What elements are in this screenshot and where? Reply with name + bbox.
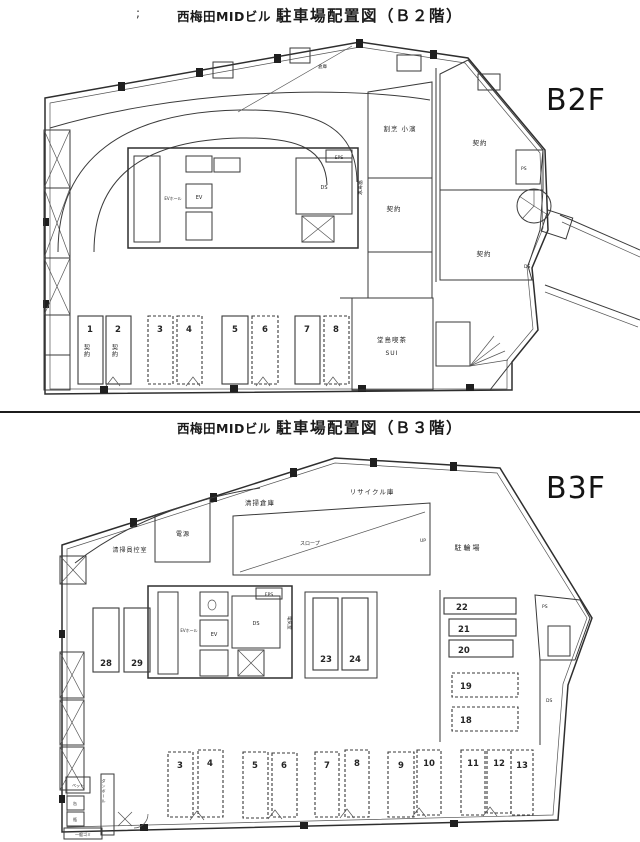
stall-number: 29 <box>131 659 143 669</box>
b2f-road-lines <box>545 215 640 327</box>
b3f-right-stair: PS DS <box>535 595 590 745</box>
b3f-recycle-label: リサイクル庫 <box>350 487 395 496</box>
stall-number: 21 <box>458 625 470 635</box>
b2f-tenant-b-room <box>440 60 543 190</box>
b3f-ev-label: EV <box>211 632 218 638</box>
b2f-cafe-sub-label: SUI <box>386 350 399 357</box>
b3f-title: 西梅田MIDビル 駐車場配置図（Ｂ３階） <box>0 416 640 438</box>
b2f-souko-label: 倉庫 <box>318 63 327 70</box>
b3f-core-stairs <box>158 592 178 674</box>
stall-number: 3 <box>177 761 183 771</box>
b2f-ramp-curves <box>50 46 430 252</box>
b2f-left-shaft-column <box>44 130 70 390</box>
stall-number: 18 <box>460 716 472 726</box>
section-divider <box>0 411 640 413</box>
b2f-wall-column-marks <box>43 39 474 393</box>
stall-number: 6 <box>281 761 287 771</box>
b2f-core-stairs <box>134 156 160 242</box>
b3f-dengen-room <box>155 498 210 562</box>
stall-number: 3 <box>157 325 163 335</box>
scanned-parking-layout-page: ; 西梅田MIDビル 駐車場配置図（Ｂ２階） <box>0 0 640 842</box>
b3f-ds-right-label: DS <box>546 698 552 704</box>
b2f-cafe-label: 堂島喫茶 <box>377 335 407 344</box>
b2f-ev-hall-label: EVホール <box>164 196 181 201</box>
b2f-cafe-room <box>352 298 433 390</box>
b2f-floor-label: B2F <box>546 83 606 118</box>
b2f-core: EVホール EV DS EPS 電気室 <box>128 148 363 248</box>
b2f-ds-label: DS <box>320 185 327 191</box>
b2f-rear-stairs <box>436 322 470 366</box>
b2f-ps-label: PS <box>521 166 527 172</box>
b3f-ev-hall-label: EVホール <box>180 628 197 633</box>
b2f-cafe-area: 堂島喫茶 SUI <box>340 298 512 390</box>
stall-number: 10 <box>423 759 435 769</box>
b3f-stalls-bottom: 3 4 5 6 7 8 9 10 11 12 13 <box>168 750 533 820</box>
b2f-ds-right-label: DS <box>524 264 530 270</box>
stall-number: 23 <box>320 655 332 665</box>
stall-number: 13 <box>516 761 528 771</box>
b2f-kappo-label: 割烹 小濱 <box>383 124 416 133</box>
b3f-churinjo-label: 駐輪場 <box>455 543 482 552</box>
b3f-ippan-label: 一般ゴミ <box>75 831 91 837</box>
b3f-kan-label: 缶 <box>73 800 77 806</box>
b2f-title: 西梅田MIDビル 駐車場配置図（Ｂ２階） <box>0 4 640 26</box>
b3f-denki-label: 電気室 <box>286 616 293 630</box>
b3f-ramp-area: 清掃倉庫 リサイクル庫 スロープ UP <box>233 487 430 575</box>
b3f-pet-label: ペット <box>72 782 84 788</box>
b3f-title-building: 西梅田MIDビル <box>177 421 271 436</box>
b2f-title-building: 西梅田MIDビル <box>177 9 271 24</box>
stall-number: 6 <box>262 325 268 335</box>
b2f-ev-label: EV <box>196 195 203 201</box>
b3f-core: EVホール EV DS EPS 電気室 <box>148 586 293 678</box>
b3f-eps-label: EPS <box>265 592 274 598</box>
b2f-floorplan: 倉庫 EVホール EV DS EPS 電気室 割烹 小濱 契約 <box>0 30 640 412</box>
b3f-dengen-label: 電源 <box>176 530 190 538</box>
stall-number: 7 <box>304 325 310 335</box>
b3f-wc <box>200 592 228 616</box>
b3f-slope-label: スロープ <box>300 541 320 547</box>
stall-number: 8 <box>354 759 360 769</box>
stall-number: 5 <box>252 761 258 771</box>
b3f-floor-label: B3F <box>546 471 606 506</box>
b3f-stalls-mid: 23 24 <box>305 592 377 678</box>
b2f-top-stairs: 倉庫 <box>213 48 500 90</box>
b3f-up-label: UP <box>420 538 426 544</box>
stall-number: 5 <box>232 325 238 335</box>
b2f-parking-stalls: 1 2 3 4 5 6 7 8 契約 契約 <box>78 316 349 386</box>
b2f-tenant-a-label: 契約 <box>387 204 402 213</box>
b2f-tenant-c-label: 契約 <box>477 249 492 258</box>
stall-number: 19 <box>460 682 472 692</box>
b3f-stalls-right: 22 21 20 19 18 <box>440 590 518 742</box>
b3f-ps-label: PS <box>542 604 548 610</box>
stall-number: 22 <box>456 603 468 613</box>
b3f-stalls-left: 28 29 <box>93 608 150 672</box>
stall-number: 28 <box>100 659 112 669</box>
stall-number: 8 <box>333 325 339 335</box>
stall-1-tag: 契約 <box>83 343 90 358</box>
b3f-ds-label: DS <box>252 621 259 627</box>
b3f-left-shaft-column <box>60 556 86 790</box>
b2f-spiral-stair: PS DS <box>516 150 573 270</box>
b3f-slope-room <box>233 503 430 575</box>
b3f-topleft-rooms: 清掃員控室 電源 <box>75 488 260 563</box>
stall-number: 4 <box>207 759 213 769</box>
b2f-tenant-b-label: 契約 <box>473 138 488 147</box>
b3f-floorplan: 清掃員控室 電源 清掃倉庫 リサイクル庫 スロープ UP 駐輪場 EVホール E… <box>0 445 640 842</box>
b3f-bin-label: 瓶 <box>73 816 77 822</box>
b2f-eps-label: EPS <box>335 155 344 161</box>
stall-2-tag: 契約 <box>111 343 118 358</box>
b3f-danboru-label: ダンボール <box>102 778 107 804</box>
b3f-hikaeshitsu-label: 清掃員控室 <box>112 546 147 554</box>
stall-number: 2 <box>115 325 121 335</box>
b2f-title-main: 駐車場配置図（Ｂ２階） <box>276 7 463 25</box>
stall-number: 20 <box>458 646 470 656</box>
stall-number: 9 <box>398 761 404 771</box>
stall-number: 12 <box>493 759 505 769</box>
b2f-denki-label: 電気室 <box>356 180 363 195</box>
stall-number: 24 <box>349 655 361 665</box>
b3f-title-main: 駐車場配置図（Ｂ３階） <box>276 419 463 437</box>
b2f-outer-walls <box>45 42 548 394</box>
b2f-tenant-a-room <box>368 178 432 252</box>
stall-number: 7 <box>324 761 330 771</box>
stall-number: 1 <box>87 325 93 335</box>
b3f-waste-area: ペット 缶 瓶 一般ゴミ ダンボール <box>64 774 148 839</box>
b3f-seisou-souko-label: 清掃倉庫 <box>245 498 275 507</box>
stall-number: 11 <box>467 759 479 769</box>
stall-number: 4 <box>186 325 192 335</box>
